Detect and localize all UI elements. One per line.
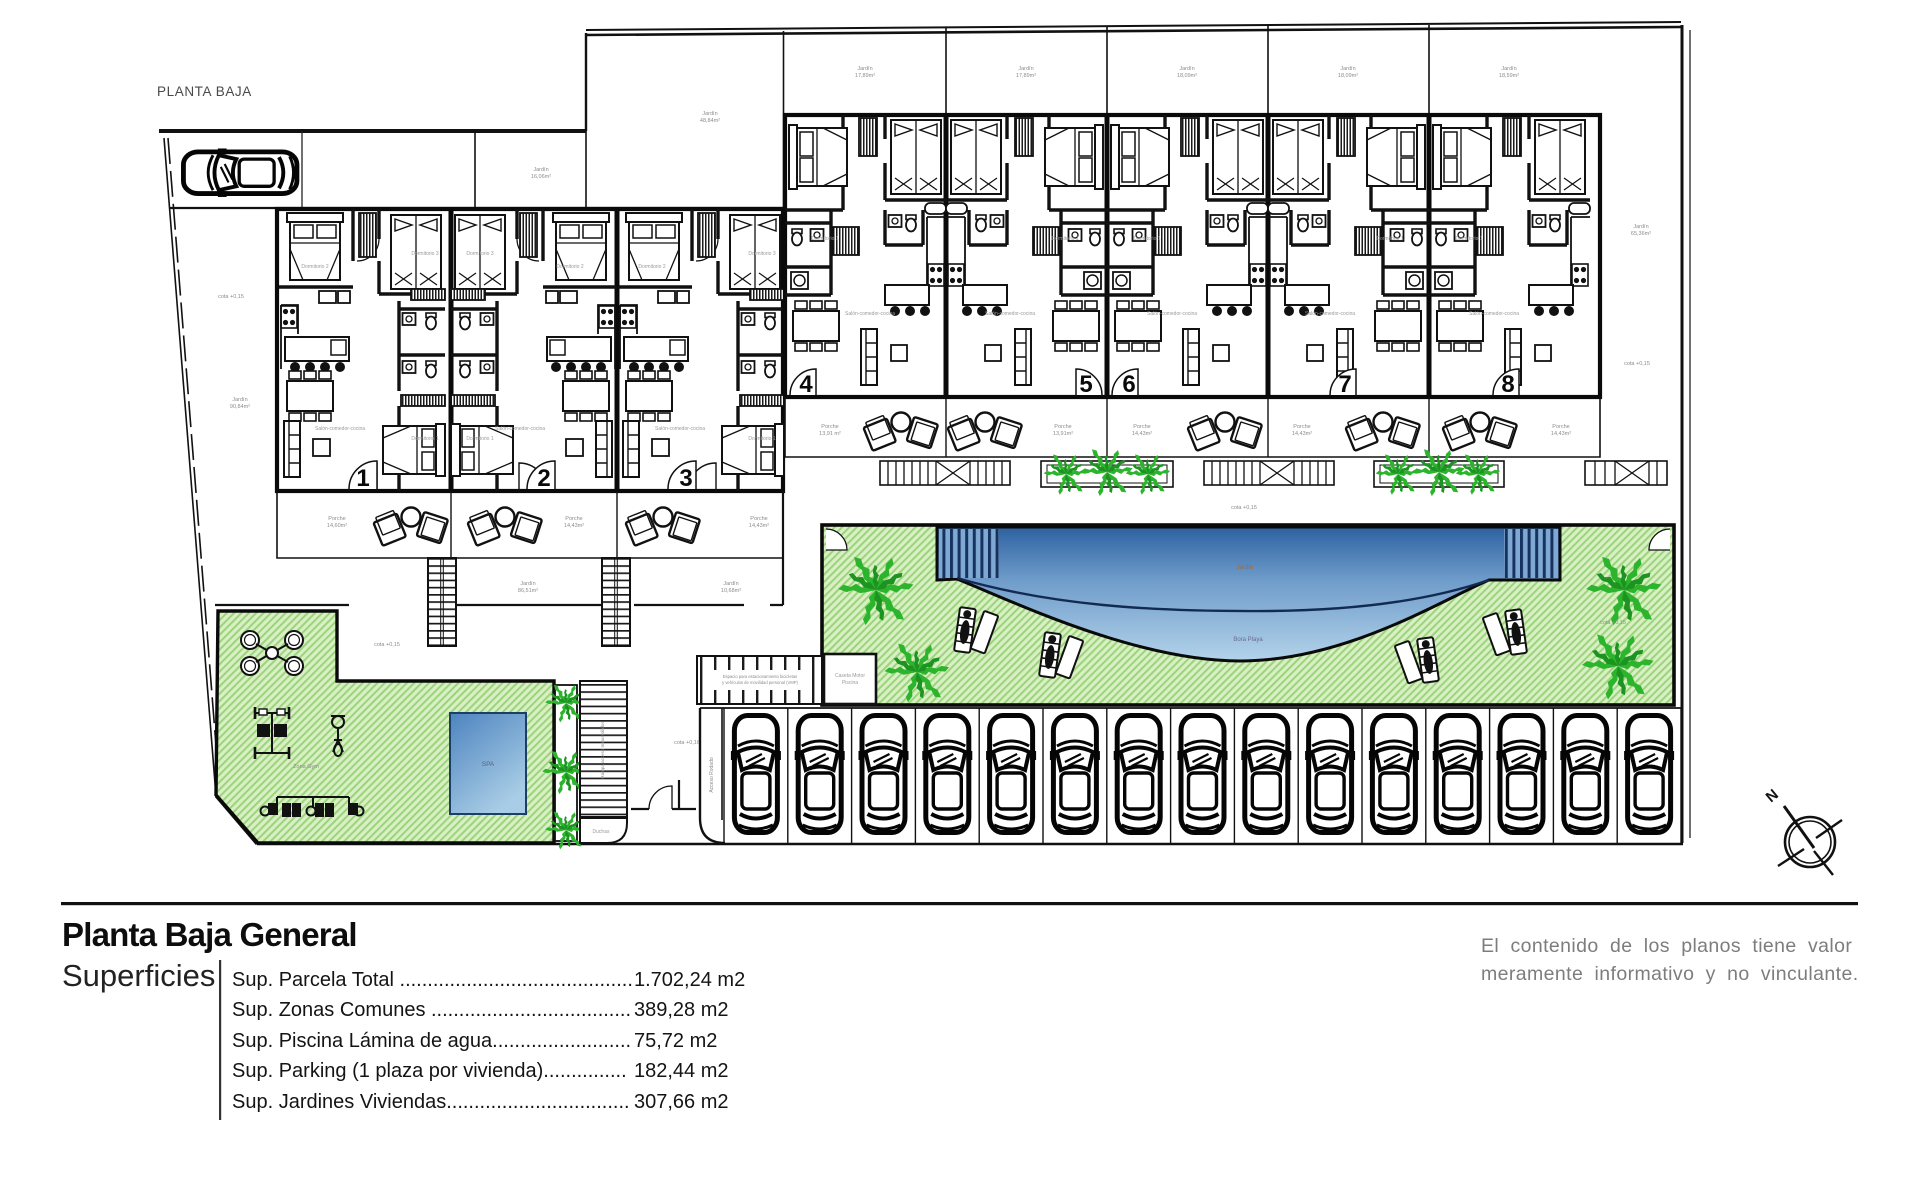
svg-text:Salón-comedor-cocina: Salón-comedor-cocina <box>1147 311 1197 317</box>
svg-text:Jardín: Jardín <box>1633 224 1648 230</box>
svg-text:Jardín: Jardín <box>533 167 548 173</box>
svg-text:Acceso Rodado: Acceso Rodado <box>709 757 715 793</box>
svg-text:Sup. Zonas Comunes ...........: Sup. Zonas Comunes .....................… <box>232 999 631 1021</box>
svg-text:Piscina: Piscina <box>842 680 858 686</box>
svg-text:PLANTA BAJA: PLANTA BAJA <box>157 84 252 99</box>
svg-text:17,89m²: 17,89m² <box>1016 73 1036 79</box>
svg-text:90,84m²: 90,84m² <box>230 404 250 410</box>
svg-text:Sup. Jardines Viviendas.......: Sup. Jardines Viviendas.................… <box>232 1091 630 1113</box>
svg-text:meramente informativo y no vin: meramente informativo y no vinculante. <box>1481 963 1859 985</box>
svg-text:Jardín: Jardín <box>1340 66 1355 72</box>
svg-text:Jardín: Jardín <box>520 581 535 587</box>
svg-text:Salón-comedor-cocina: Salón-comedor-cocina <box>845 311 895 317</box>
svg-text:1.702,24 m2: 1.702,24 m2 <box>634 969 745 991</box>
svg-text:86,51m²: 86,51m² <box>518 588 538 594</box>
svg-text:5: 5 <box>1079 371 1092 398</box>
svg-text:Porche: Porche <box>1133 424 1150 430</box>
svg-text:Jardín: Jardín <box>723 581 738 587</box>
svg-text:Dormitorio 1: Dormitorio 1 <box>1376 236 1403 242</box>
svg-text:18,09m²: 18,09m² <box>1338 73 1358 79</box>
svg-text:Salón-comedor-cocina: Salón-comedor-cocina <box>1305 311 1355 317</box>
svg-text:Dormitorio 1: Dormitorio 1 <box>411 436 438 442</box>
svg-text:14,43m²: 14,43m² <box>1292 431 1312 437</box>
svg-text:Dormitorio 1: Dormitorio 1 <box>466 436 493 442</box>
svg-text:Porche: Porche <box>1054 424 1071 430</box>
svg-text:4: 4 <box>799 371 813 398</box>
svg-text:14,43m²: 14,43m² <box>749 523 769 529</box>
svg-text:Espacio para estacionamiento b: Espacio para estacionamiento bicicletas <box>723 674 798 679</box>
svg-text:Dormitorio 3: Dormitorio 3 <box>411 251 438 257</box>
svg-text:3: 3 <box>679 465 692 492</box>
svg-text:Caseta Motor: Caseta Motor <box>835 673 865 679</box>
svg-text:Dormitorio 3: Dormitorio 3 <box>748 251 775 257</box>
svg-text:18,59m²: 18,59m² <box>1499 73 1519 79</box>
svg-text:Salón-comedor-cocina: Salón-comedor-cocina <box>315 426 365 432</box>
svg-text:Jardín: Jardín <box>232 397 247 403</box>
svg-text:Salón-comedor-cocina: Salón-comedor-cocina <box>655 426 705 432</box>
svg-text:Planta Baja General: Planta Baja General <box>62 916 357 953</box>
svg-text:El contenido de los planos tie: El contenido de los planos tiene valor <box>1481 935 1852 957</box>
svg-text:48,84m²: 48,84m² <box>700 118 720 124</box>
svg-text:SPA: SPA <box>482 761 495 768</box>
svg-text:10,68m²: 10,68m² <box>721 588 741 594</box>
svg-text:Jardín: Jardín <box>1018 66 1033 72</box>
svg-text:Sup. Parcela Total ...........: Sup. Parcela Total .....................… <box>232 969 633 991</box>
svg-text:Dormitorio 1: Dormitorio 1 <box>1133 236 1160 242</box>
svg-text:Dormitorio 1: Dormitorio 1 <box>1051 236 1078 242</box>
svg-text:1: 1 <box>356 465 369 492</box>
svg-text:Sup. Parking (1 plaza por vivi: Sup. Parking (1 plaza por vivienda).....… <box>232 1060 627 1082</box>
svg-text:307,66 m2: 307,66 m2 <box>634 1091 729 1113</box>
svg-text:cota +0,15: cota +0,15 <box>1600 620 1626 626</box>
svg-text:Porche: Porche <box>328 516 345 522</box>
svg-text:Jardín: Jardín <box>1501 66 1516 72</box>
svg-text:Dormitorio 2: Dormitorio 2 <box>301 264 328 270</box>
svg-text:Dormitorio 3: Dormitorio 3 <box>466 251 493 257</box>
svg-text:Superficies: Superficies <box>62 958 215 993</box>
svg-text:cota +0,15: cota +0,15 <box>374 642 400 648</box>
svg-text:Bora Playa: Bora Playa <box>1233 637 1263 643</box>
svg-text:Dormitorio 1: Dormitorio 1 <box>1455 236 1482 242</box>
svg-text:y vehículos de movilidad perso: y vehículos de movilidad personal (VMP) <box>722 680 798 685</box>
svg-text:14,43m²: 14,43m² <box>564 523 584 529</box>
svg-text:14,60m²: 14,60m² <box>327 523 347 529</box>
svg-text:13,91 m²: 13,91 m² <box>819 431 841 437</box>
svg-text:Jardín: Jardín <box>857 66 872 72</box>
svg-text:Rampa acceso minusválidos: Rampa acceso minusválidos <box>600 721 605 779</box>
svg-text:6: 6 <box>1122 371 1135 398</box>
svg-text:14,43m²: 14,43m² <box>1132 431 1152 437</box>
svg-text:Dormitorio 1: Dormitorio 1 <box>748 436 775 442</box>
svg-text:Jardín: Jardín <box>1179 66 1194 72</box>
svg-text:13,91m²: 13,91m² <box>1053 431 1073 437</box>
svg-text:cota +0,16: cota +0,16 <box>674 740 700 746</box>
svg-text:Dormitorio 1: Dormitorio 1 <box>811 236 838 242</box>
svg-text:17,89m²: 17,89m² <box>855 73 875 79</box>
svg-text:Porche: Porche <box>565 516 582 522</box>
svg-text:Porche: Porche <box>821 424 838 430</box>
svg-text:Dormitorio 2: Dormitorio 2 <box>638 264 665 270</box>
svg-text:Jardín: Jardín <box>702 111 717 117</box>
svg-text:Zona Gym: Zona Gym <box>293 764 319 770</box>
svg-text:Dormitorio 2: Dormitorio 2 <box>556 264 583 270</box>
svg-text:Duchas: Duchas <box>593 829 610 835</box>
svg-text:8: 8 <box>1501 371 1514 398</box>
svg-text:Salón-comedor-cocina: Salón-comedor-cocina <box>495 426 545 432</box>
svg-text:75,72 m2: 75,72 m2 <box>634 1030 717 1052</box>
svg-text:Porche: Porche <box>1293 424 1310 430</box>
svg-text:14,43m²: 14,43m² <box>1551 431 1571 437</box>
svg-text:2: 2 <box>537 465 550 492</box>
svg-text:cota +0,15: cota +0,15 <box>218 294 244 300</box>
svg-text:cota +0,15: cota +0,15 <box>1231 505 1257 511</box>
svg-text:Porche: Porche <box>750 516 767 522</box>
svg-text:7: 7 <box>1338 371 1351 398</box>
svg-text:16,06m²: 16,06m² <box>531 174 551 180</box>
svg-text:65,36m²: 65,36m² <box>1631 231 1651 237</box>
svg-text:389,28 m2: 389,28 m2 <box>634 999 729 1021</box>
svg-text:Salón-comedor-cocina: Salón-comedor-cocina <box>985 311 1035 317</box>
svg-text:Sup. Piscina Lámina de agua...: Sup. Piscina Lámina de agua.............… <box>232 1030 631 1052</box>
svg-text:182,44 m2: 182,44 m2 <box>634 1060 729 1082</box>
svg-text:Porche: Porche <box>1552 424 1569 430</box>
svg-text:Jardín: Jardín <box>1237 565 1254 571</box>
svg-text:Salón-comedor-cocina: Salón-comedor-cocina <box>1469 311 1519 317</box>
svg-text:cota +0,15: cota +0,15 <box>1624 361 1650 367</box>
svg-text:18,09m²: 18,09m² <box>1177 73 1197 79</box>
